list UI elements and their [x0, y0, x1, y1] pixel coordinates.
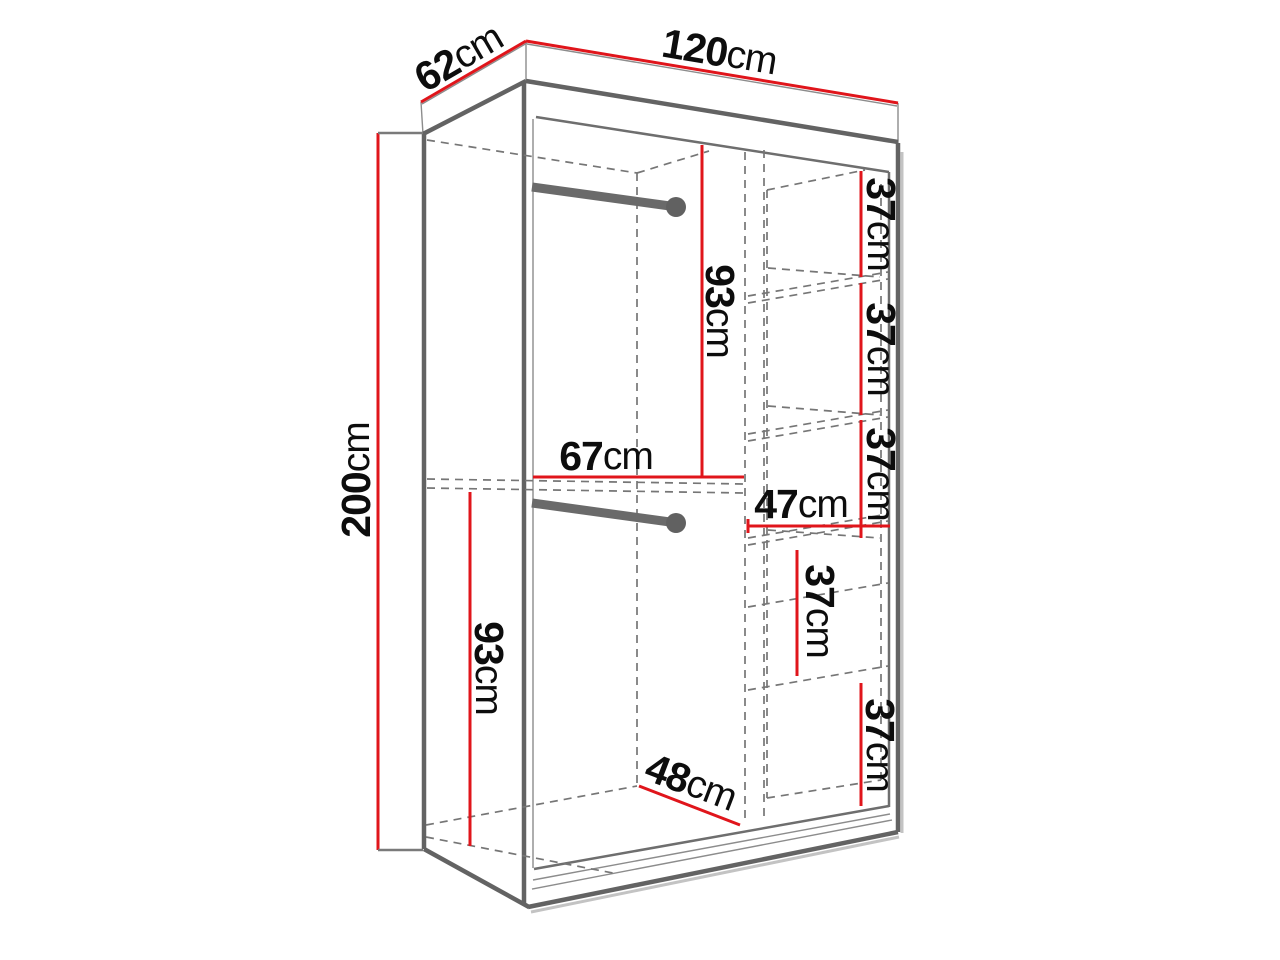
depth-label: 62cm	[406, 14, 510, 101]
wardrobe-dimension-diagram: 62cm 120cm 200cm 93cm 67cm 93cm 47cm 48c…	[0, 0, 1280, 960]
plinth-line-2	[532, 820, 892, 889]
left-width-label: 67cm	[559, 433, 653, 479]
lower-hanging-rod	[532, 503, 670, 522]
bottom-front-edge	[528, 832, 898, 907]
bottom-shelf-gap-label: 37cm	[857, 698, 903, 792]
width-label: 120cm	[659, 20, 780, 85]
slab-left-edge	[421, 102, 423, 134]
left-panel-bottom-edge	[424, 849, 529, 907]
height-label: 200cm	[333, 422, 379, 537]
drawer-section-label: 37cm	[797, 564, 843, 658]
dimension-labels: 62cm 120cm 200cm 93cm 67cm 93cm 47cm 48c…	[333, 14, 904, 820]
interior-ceiling-edge	[536, 117, 889, 172]
lower-rod-end-cap	[666, 513, 686, 533]
upper-hanging-rod	[532, 187, 670, 206]
mid-shelf-edge-1	[427, 479, 744, 484]
back-top-continuation	[637, 151, 709, 173]
shelf-gap2-label: 37cm	[858, 302, 904, 396]
upper-rod-end-cap	[666, 197, 686, 217]
bottom-depth-label: 48cm	[639, 744, 743, 820]
right-back-top-edge	[767, 170, 865, 190]
shelf-gap1-label: 37cm	[858, 177, 904, 271]
shelf-gap3-label: 37cm	[858, 427, 904, 521]
floor-back-left-edge	[426, 786, 637, 825]
shelf-width-label: 47cm	[754, 481, 848, 527]
bottom-shadow	[531, 837, 899, 912]
diagram-canvas: 62cm 120cm 200cm 93cm 67cm 93cm 47cm 48c…	[0, 0, 1280, 960]
shelf1-front-edge-2	[748, 279, 888, 303]
drawer-bottom-edge	[748, 666, 888, 690]
slab-bottom-front-edge	[526, 81, 898, 142]
mid-shelf-edge-2	[427, 488, 744, 493]
upper-section-label: 93cm	[697, 264, 743, 358]
back-top-left-edge	[427, 140, 637, 173]
lower-section-label: 93cm	[466, 621, 512, 715]
